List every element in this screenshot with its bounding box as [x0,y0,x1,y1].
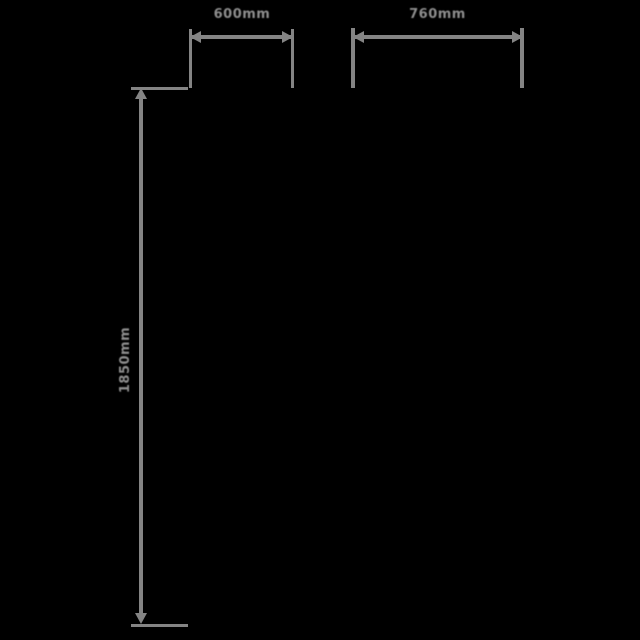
dimension-diagram: 600mm 760mm 1850mm [0,0,640,640]
left-dimension-line [139,95,143,619]
extension-line [291,29,294,88]
extension-line [131,624,188,627]
extension-line [131,87,188,90]
top-right-dimension-line [353,35,523,39]
extension-line [189,29,192,88]
top-right-width-label: 760mm [352,6,523,24]
top-left-dimension-line [190,35,293,39]
arrow-down-icon [135,613,147,624]
top-left-width-label: 600mm [190,6,294,24]
extension-line [351,28,355,88]
left-height-label: 1850mm [117,325,135,395]
extension-line [520,28,524,88]
